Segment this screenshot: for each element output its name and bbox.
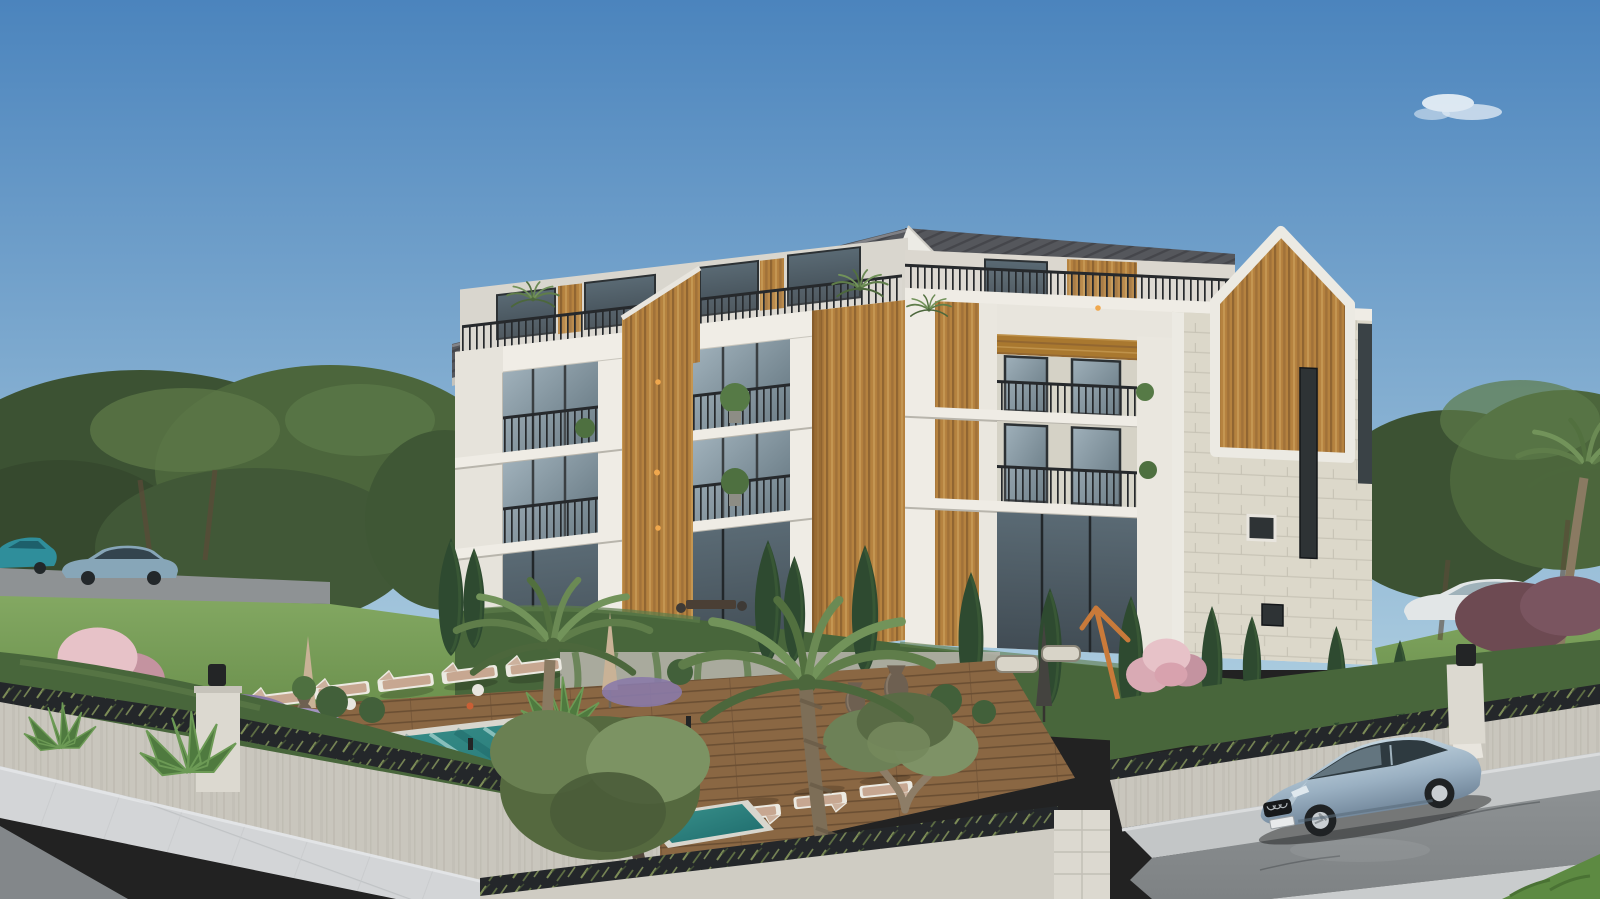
architectural-render [0,0,1600,899]
render-canvas [0,0,1600,899]
wall-sconce [655,379,661,385]
wall-sconce [655,525,661,531]
wall-sconce [1095,305,1101,311]
gate-pillar [1054,810,1110,899]
pillar-lamp [1456,644,1476,666]
pillar-lamp [208,664,226,686]
